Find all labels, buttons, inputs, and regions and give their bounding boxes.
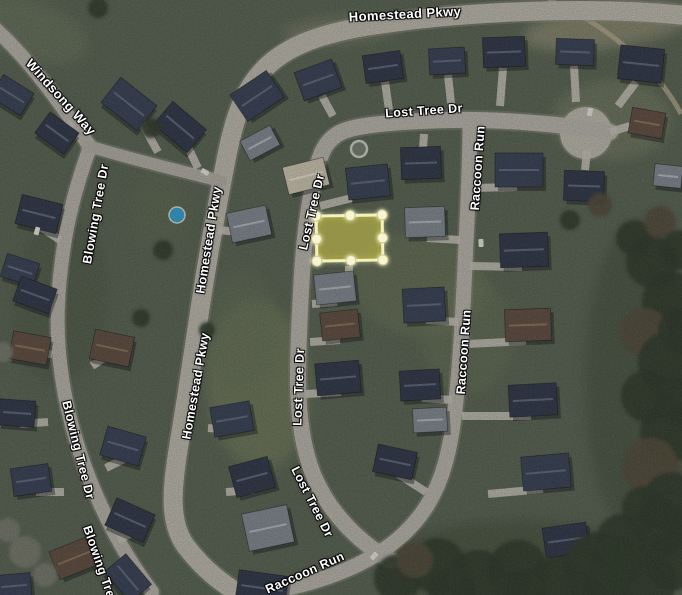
parcel-vertex-handle[interactable] — [311, 233, 322, 244]
parcel-vertex-handle[interactable] — [311, 210, 322, 221]
satellite-map[interactable]: Homestead Pkwy Homestead Pkwy Homestead … — [0, 0, 682, 595]
selected-parcel-highlight[interactable] — [315, 213, 385, 262]
satellite-imagery — [0, 0, 682, 595]
parcel-vertex-handle[interactable] — [344, 210, 355, 221]
image-grain — [0, 0, 682, 595]
parcel-vertex-handle[interactable] — [345, 255, 356, 266]
